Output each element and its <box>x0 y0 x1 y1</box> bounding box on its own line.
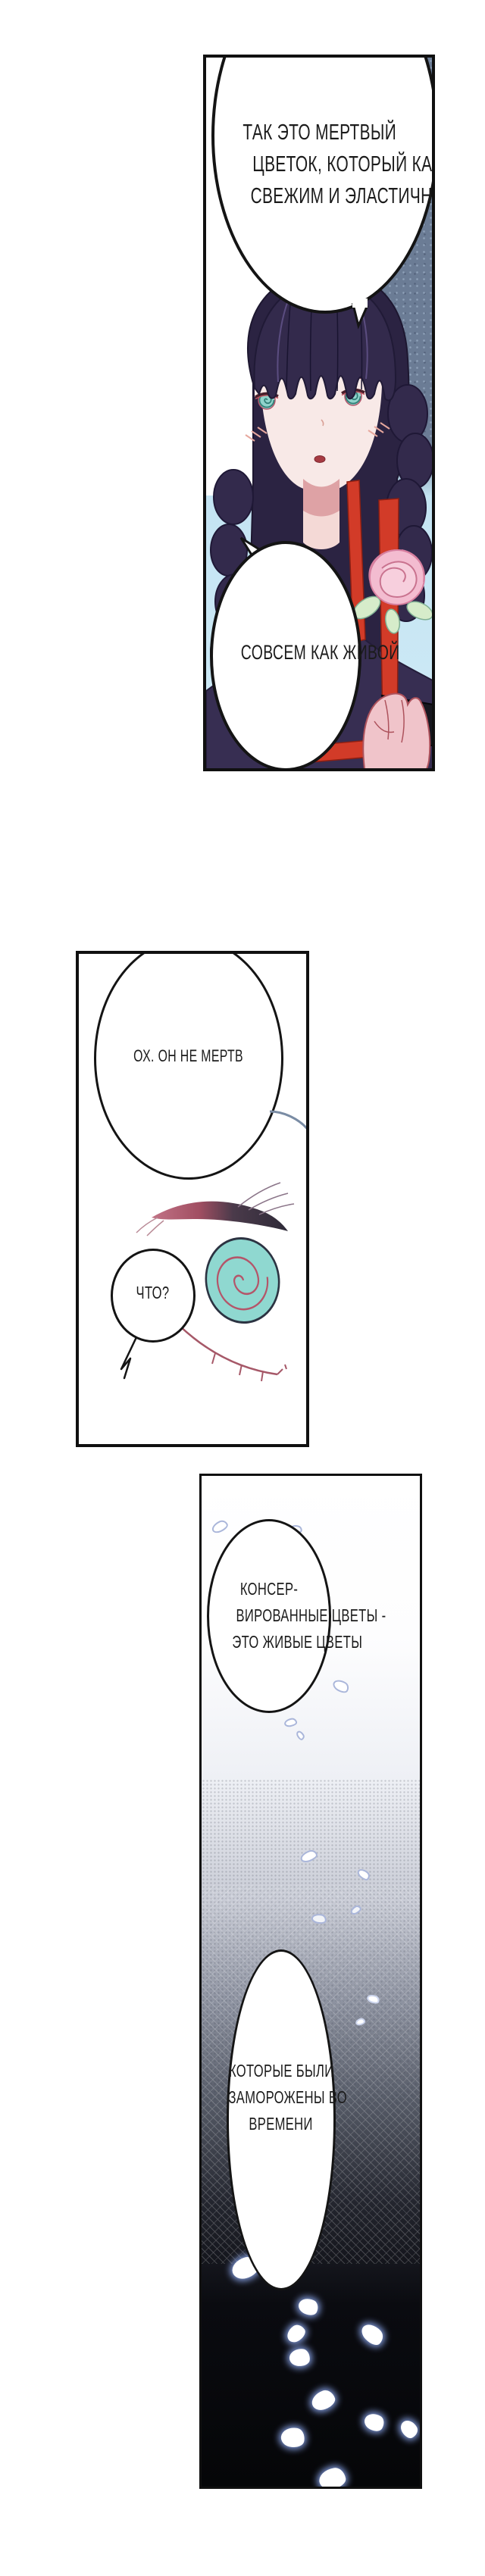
eyebrow-illustration <box>136 1183 294 1236</box>
speech-line: ЗАМОРОЖЕНЫ ВО <box>228 2084 347 2111</box>
petal <box>296 2295 321 2318</box>
petal <box>309 2387 337 2412</box>
panel-3: КОНСЕР- ВИРОВАННЫЕ ЦВЕТЫ - ЭТО ЖИВЫЕ ЦВЕ… <box>199 1474 422 2489</box>
eye-illustration <box>79 954 309 1447</box>
panel-2: ОХ. ОН НЕ МЕРТВ <box>76 951 309 1447</box>
speech-bubble-zigzag-tail <box>121 1337 136 1378</box>
petal <box>361 2410 387 2434</box>
petal <box>284 2322 308 2346</box>
speech-line: ВРЕМЕНИ <box>249 2111 313 2137</box>
panel-1: ТАК ЭТО МЕРТВЫЙ ЦВЕТОК, КОТОРЫЙ КАЖЕТСЯ … <box>203 55 435 771</box>
petal <box>210 1518 230 1535</box>
lower-lash-illustration <box>179 1325 286 1381</box>
petal <box>398 2418 420 2441</box>
petal <box>331 1677 352 1696</box>
petal <box>283 1718 298 1728</box>
eyelid-crease-line <box>270 1111 309 1131</box>
petal <box>318 2466 347 2489</box>
speech-line: КОНСЕР- <box>240 1576 298 1602</box>
speech-text: КОНСЕР- ВИРОВАННЫЕ ЦВЕТЫ - ЭТО ЖИВЫЕ ЦВЕ… <box>207 1576 331 1655</box>
petal <box>295 1730 305 1742</box>
petal <box>289 2348 311 2367</box>
speech-text: СОВСЕМ КАК ЖИВОЙ <box>210 639 361 665</box>
speech-line: КОТОРЫЕ БЫЛИ <box>229 2058 334 2084</box>
petal <box>358 2320 386 2348</box>
spiral-iris-illustration <box>201 1233 285 1327</box>
speech-line: ВИРОВАННЫЕ ЦВЕТЫ - <box>236 1602 386 1629</box>
speech-text: ЧТО? <box>111 1281 196 1304</box>
speech-line: СОВСЕМ КАК ЖИВОЙ <box>241 639 400 665</box>
webtoon-page: ТАК ЭТО МЕРТВЫЙ ЦВЕТОК, КОТОРЫЙ КАЖЕТСЯ … <box>0 0 485 2576</box>
petal <box>280 2426 306 2449</box>
speech-text: КОТОРЫЕ БЫЛИ ЗАМОРОЖЕНЫ ВО ВРЕМЕНИ <box>205 2058 357 2137</box>
speech-line: ЧТО? <box>136 1281 170 1304</box>
speech-line: ЭТО ЖИВЫЕ ЦВЕТЫ <box>232 1629 362 1655</box>
